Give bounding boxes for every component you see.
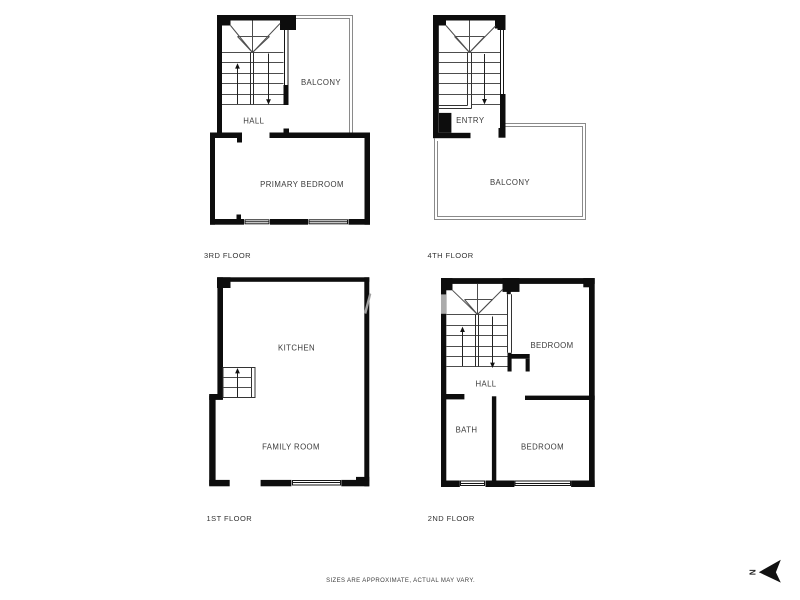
svg-text:3RD FLOOR: 3RD FLOOR: [204, 251, 251, 260]
svg-text:BEDROOM: BEDROOM: [530, 341, 573, 350]
svg-text:1ST FLOOR: 1ST FLOOR: [207, 514, 253, 523]
svg-text:4TH FLOOR: 4TH FLOOR: [428, 251, 474, 260]
svg-text:BALCONY: BALCONY: [301, 78, 341, 87]
svg-text:2ND FLOOR: 2ND FLOOR: [428, 514, 475, 523]
svg-text:BEDROOM: BEDROOM: [521, 443, 564, 452]
svg-text:N: N: [749, 569, 758, 575]
svg-text:BATH: BATH: [456, 425, 478, 434]
svg-text:KITCHEN: KITCHEN: [278, 344, 315, 353]
svg-text:ENTRY: ENTRY: [456, 116, 485, 125]
svg-text:SIZES ARE APPROXIMATE, ACTUAL: SIZES ARE APPROXIMATE, ACTUAL MAY VARY.: [326, 578, 475, 584]
svg-text:PRIMARY BEDROOM: PRIMARY BEDROOM: [260, 180, 344, 189]
svg-text:HALL: HALL: [243, 116, 264, 125]
svg-text:BALCONY: BALCONY: [490, 178, 530, 187]
svg-text:HALL: HALL: [475, 379, 496, 388]
svg-text:FAMILY ROOM: FAMILY ROOM: [262, 443, 320, 452]
